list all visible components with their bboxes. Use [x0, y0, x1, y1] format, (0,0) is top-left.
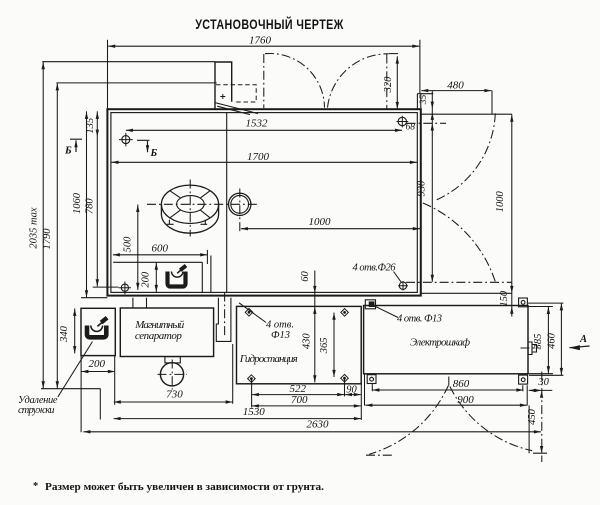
svg-text:Размер может быть увеличен в з: Размер может быть увеличен в зависимости… — [45, 482, 324, 493]
svg-text:730: 730 — [166, 389, 183, 401]
svg-text:Б: Б — [64, 146, 72, 157]
svg-text:1000: 1000 — [495, 191, 506, 213]
svg-text:1700: 1700 — [247, 151, 270, 163]
svg-text:600: 600 — [152, 242, 169, 254]
svg-text:1000: 1000 — [309, 216, 332, 228]
svg-text:90: 90 — [346, 385, 357, 396]
svg-text:1060: 1060 — [72, 192, 83, 214]
svg-text:Ф13: Ф13 — [271, 330, 290, 341]
svg-text:900: 900 — [457, 394, 474, 406]
svg-text:385: 385 — [533, 334, 544, 351]
svg-text:320: 320 — [383, 76, 394, 94]
svg-text:35: 35 — [419, 95, 429, 106]
svg-text:430: 430 — [301, 333, 312, 350]
svg-text:200: 200 — [89, 358, 106, 370]
svg-text:460: 460 — [547, 332, 558, 349]
svg-text:2035 max: 2035 max — [29, 207, 40, 248]
svg-text:860: 860 — [453, 378, 470, 390]
svg-text:Гидростанция: Гидростанция — [239, 353, 298, 365]
svg-text:1790: 1790 — [42, 228, 53, 250]
svg-text:4 отв. Ф13: 4 отв. Ф13 — [397, 313, 442, 324]
svg-text:А: А — [579, 334, 587, 345]
svg-text:УСТАНОВОЧНЫЙ ЧЕРТЕЖ: УСТАНОВОЧНЫЙ ЧЕРТЕЖ — [195, 17, 344, 32]
svg-text:4 отв.Ф26: 4 отв.Ф26 — [353, 262, 397, 273]
svg-text:2630: 2630 — [307, 418, 330, 430]
svg-text:135: 135 — [85, 118, 96, 134]
svg-text:200: 200 — [140, 271, 151, 288]
svg-text:450: 450 — [527, 408, 538, 425]
svg-text:340: 340 — [59, 325, 70, 343]
svg-text:1760: 1760 — [249, 35, 272, 47]
svg-text:150: 150 — [499, 290, 510, 307]
svg-text:930: 930 — [417, 180, 428, 197]
svg-text:1532: 1532 — [246, 118, 269, 130]
svg-text:500: 500 — [123, 236, 134, 253]
svg-text:480: 480 — [447, 80, 464, 92]
svg-text:365: 365 — [319, 338, 330, 355]
svg-text:*: * — [33, 481, 38, 492]
svg-text:68: 68 — [406, 122, 416, 132]
svg-text:30: 30 — [537, 377, 549, 388]
svg-text:стружки: стружки — [18, 405, 55, 416]
svg-text:1530: 1530 — [243, 406, 266, 418]
svg-text:60: 60 — [300, 271, 311, 282]
svg-text:сепаратор: сепаратор — [135, 330, 183, 342]
svg-text:780: 780 — [85, 198, 96, 215]
svg-text:Электрошкаф: Электрошкаф — [410, 336, 470, 348]
svg-text:Б: Б — [150, 148, 158, 159]
svg-text:700: 700 — [291, 394, 308, 406]
